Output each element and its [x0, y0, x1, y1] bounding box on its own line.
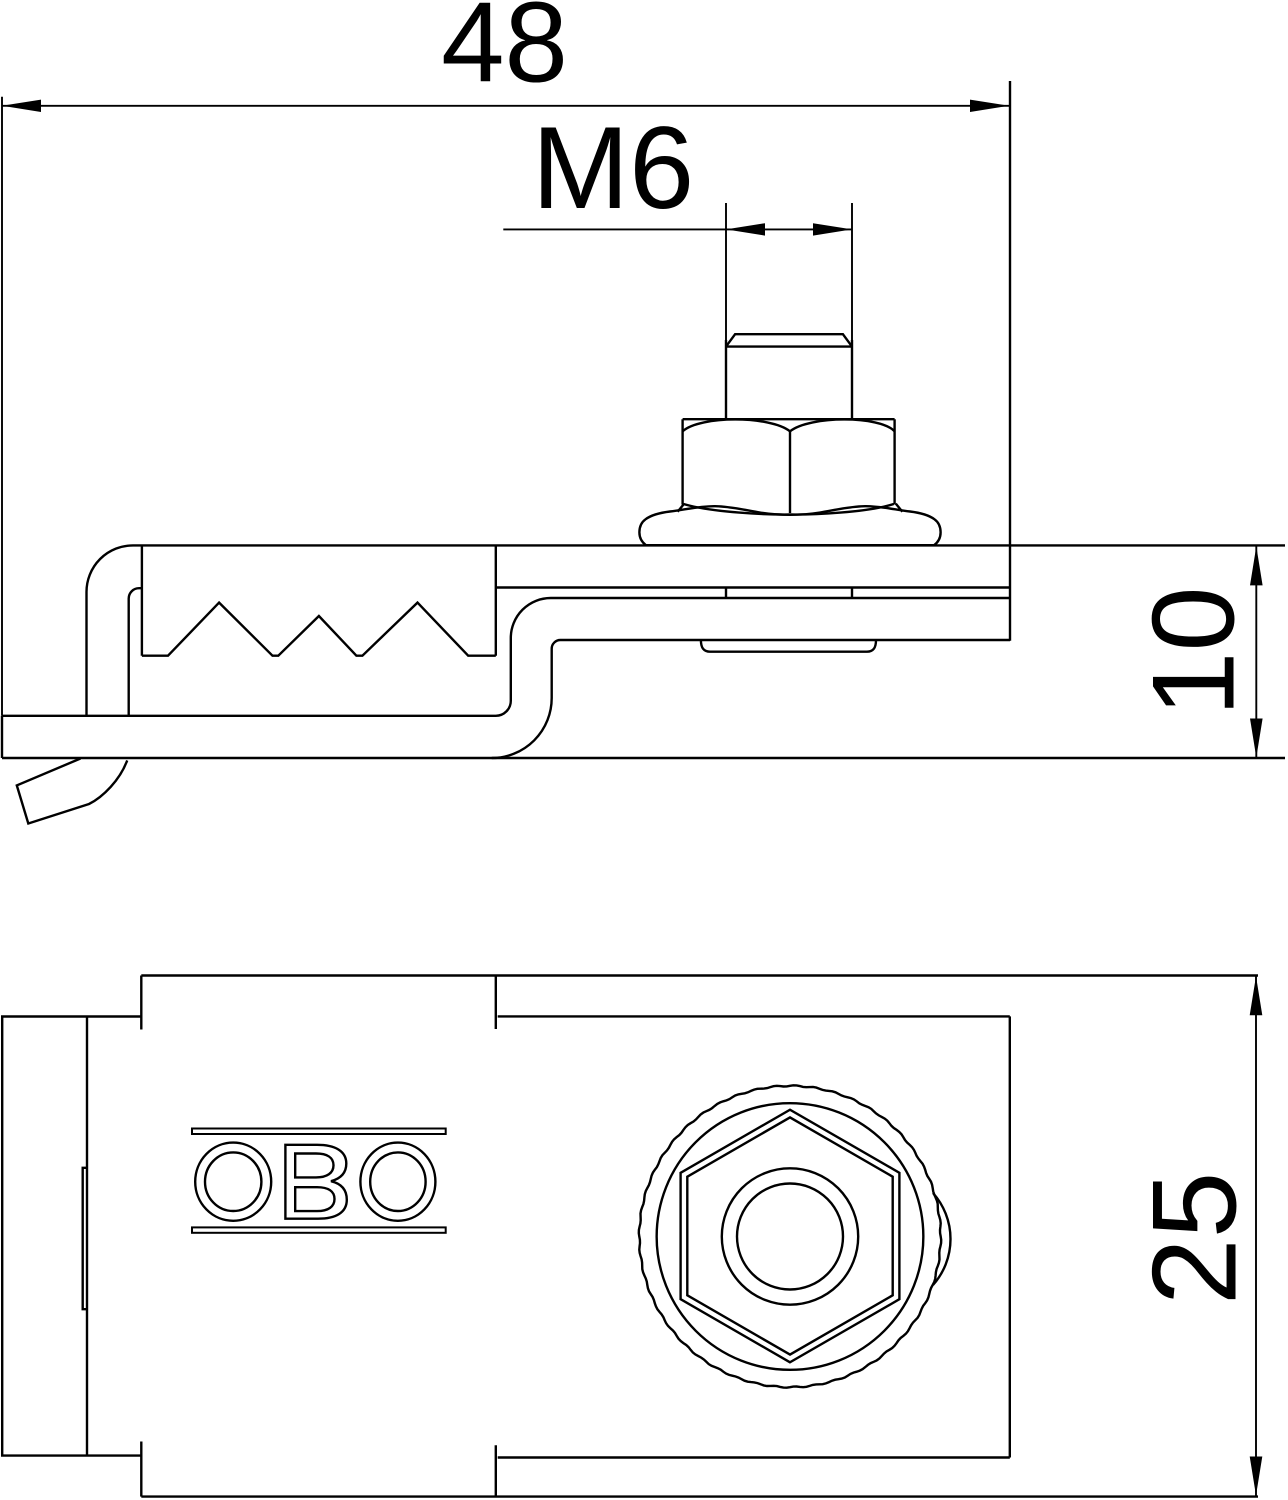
svg-text:25: 25 — [1128, 1172, 1262, 1305]
svg-text:M6: M6 — [532, 102, 695, 233]
svg-text:48: 48 — [441, 0, 568, 107]
svg-text:10: 10 — [1128, 586, 1259, 716]
